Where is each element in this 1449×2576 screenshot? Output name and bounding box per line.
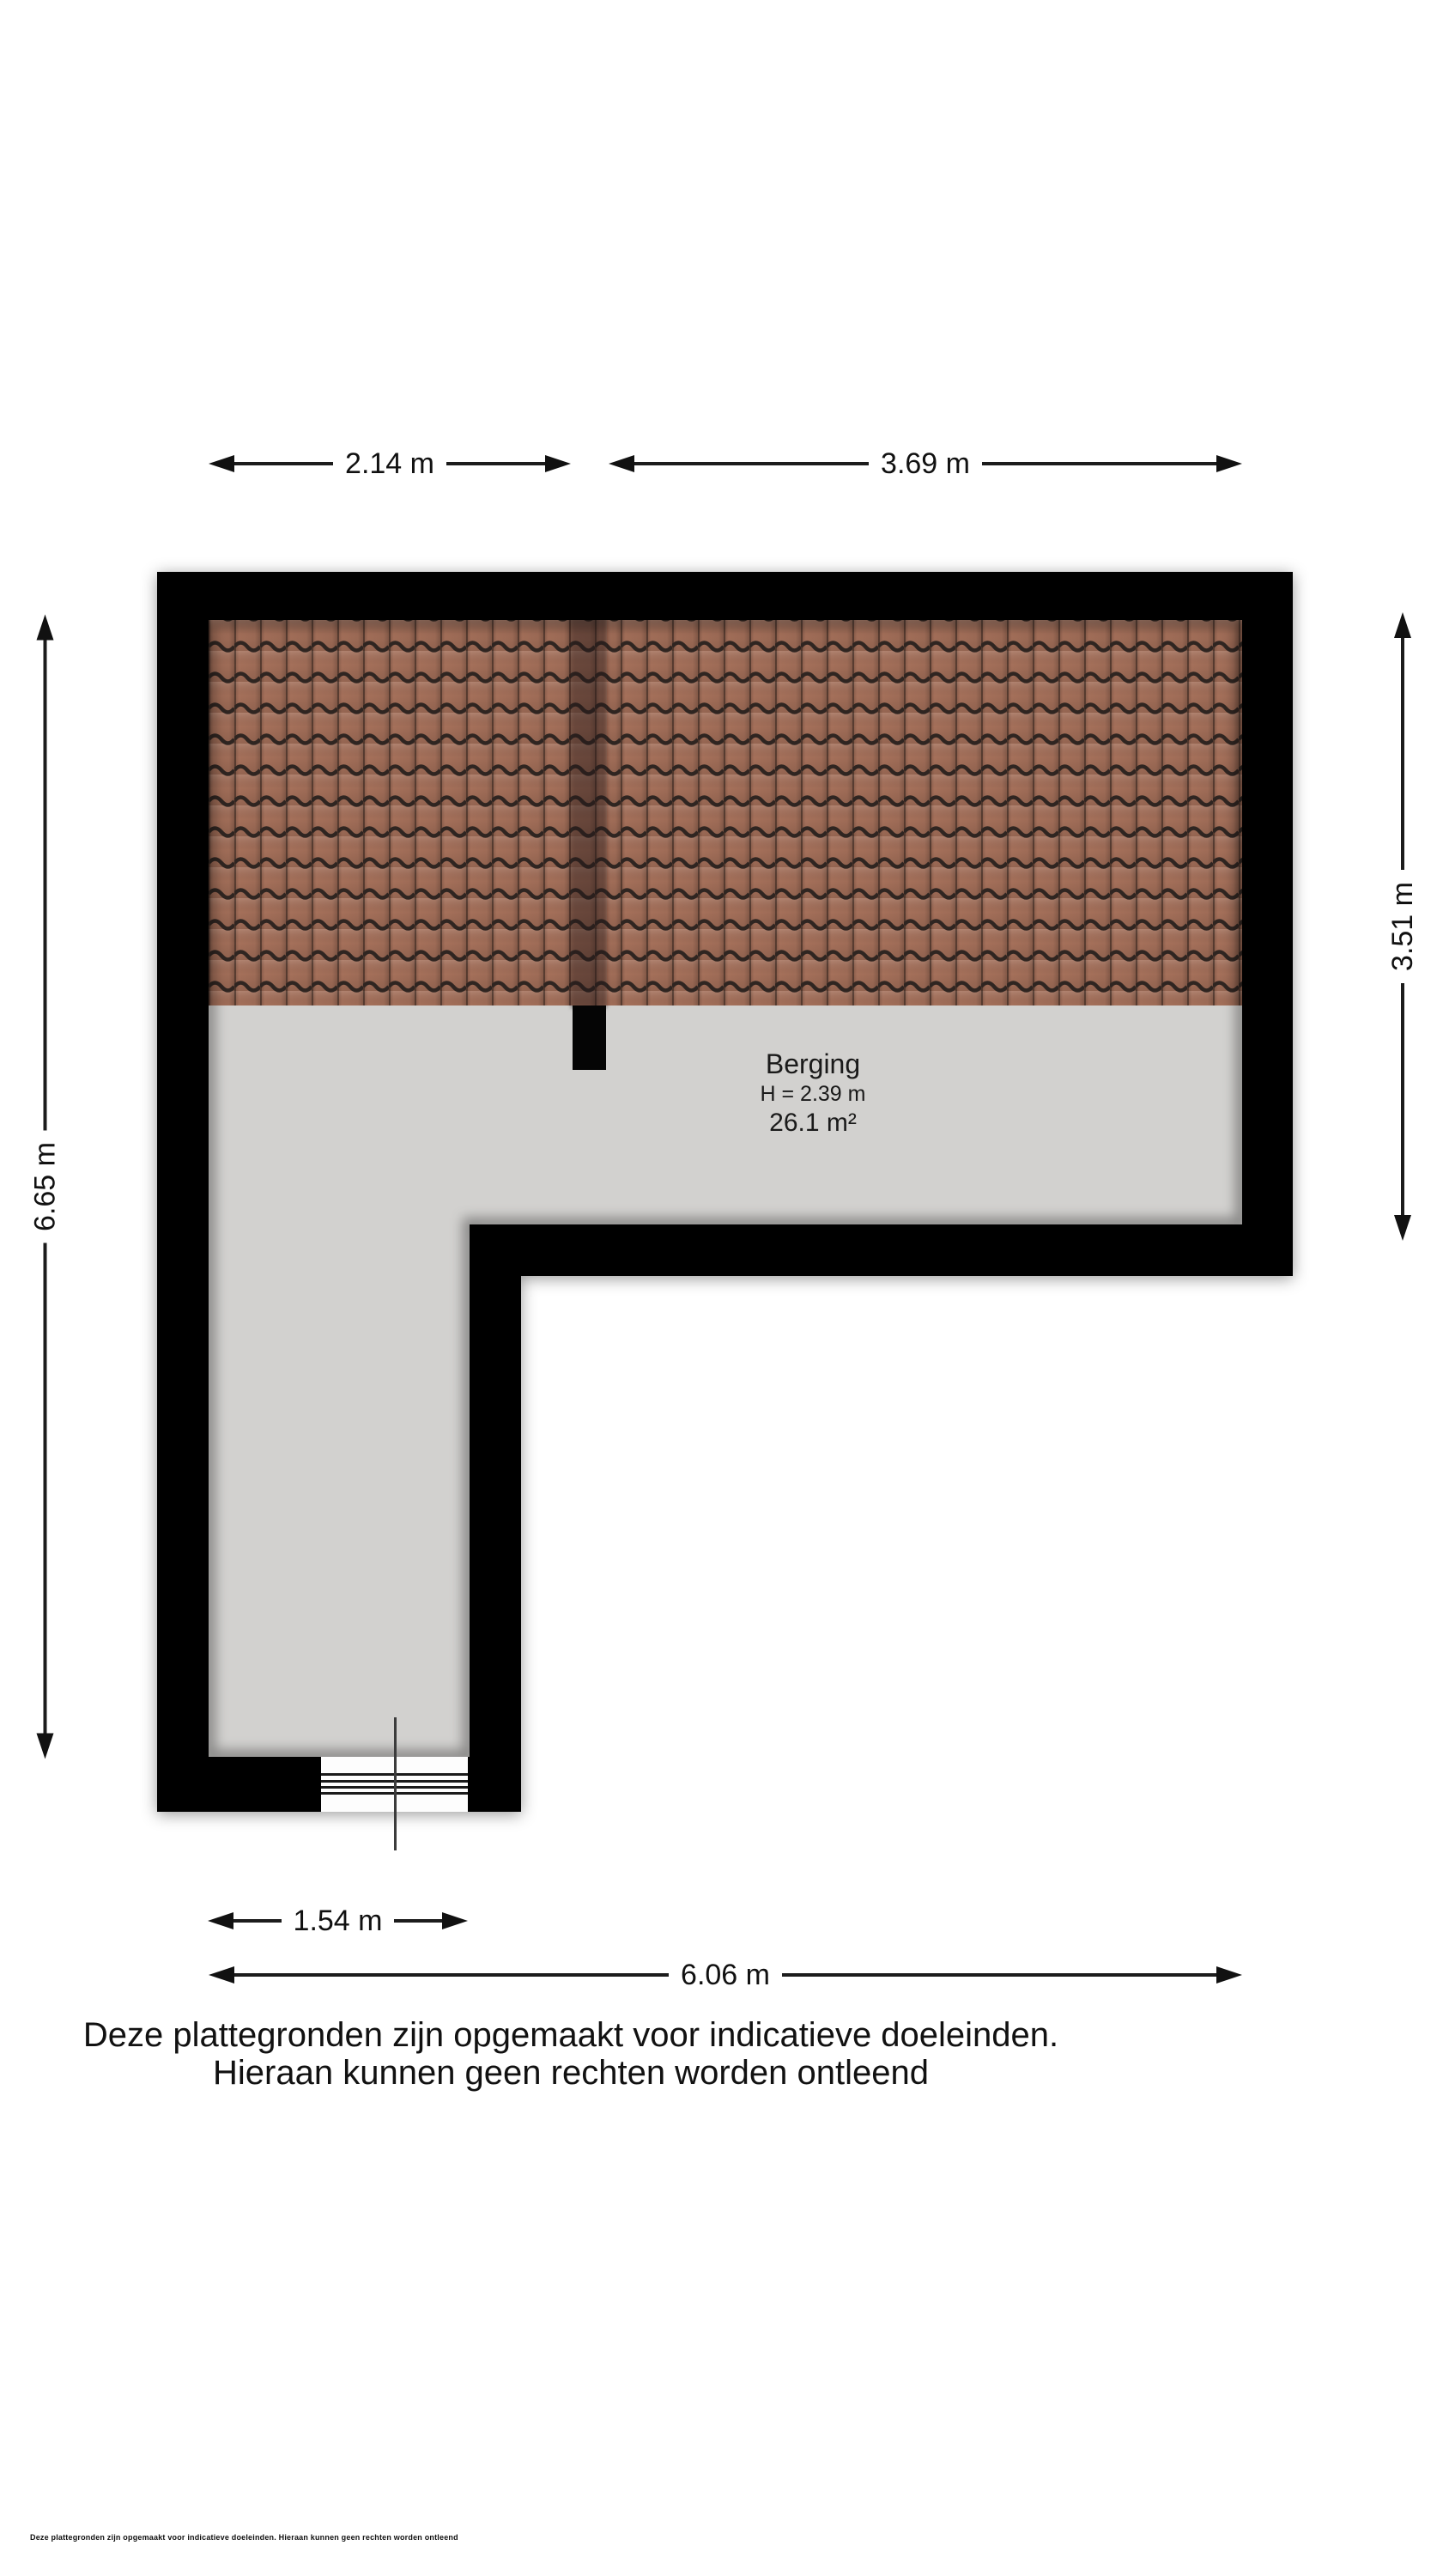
dimension-line [44,1243,47,1734]
dimension-line [634,462,869,465]
arrow-left-icon [609,455,634,472]
dimension-label: 1.54 m [282,1905,395,1938]
dimension-label: 6.06 m [669,1959,782,1992]
disclaimer-line2: Hieraan kunnen geen rechten worden ontle… [0,2054,1142,2092]
roof-tiles [209,620,1242,1005]
arrow-right-icon [1216,1966,1242,1984]
fine-print: Deze plattegronden zijn opgemaakt voor i… [30,2533,458,2542]
room-name: Berging [598,1048,1028,1080]
window-center-line [394,1717,397,1850]
dimension-line [44,640,47,1130]
dimension-line [234,462,333,465]
dimension-line [982,462,1216,465]
floor-plan [0,0,1449,2576]
dimension-label: 2.14 m [333,447,446,481]
dimension-label: 3.69 m [869,447,982,481]
dimension-line [1401,638,1404,870]
dimension-line [782,1973,1216,1977]
room-ceiling-height: H = 2.39 m [598,1080,1028,1108]
arrow-right-icon [442,1912,468,1929]
dimension-bottom-outer: 6.06 m [209,1958,1242,1992]
room-area: 26.1 m² [598,1108,1028,1139]
dimension-line [234,1973,669,1977]
dimension-line [233,1919,282,1923]
dimension-label: 3.51 m [1386,870,1420,983]
dimension-label: 6.65 m [28,1130,62,1243]
arrow-right-icon [545,455,571,472]
disclaimer-line1: Deze plattegronden zijn opgemaakt voor i… [0,2016,1142,2054]
dimension-top-left: 2.14 m [209,447,571,481]
arrow-left-icon [1394,1215,1411,1241]
dimension-line [394,1919,442,1923]
arrow-left-icon [209,455,234,472]
disclaimer: Deze plattegronden zijn opgemaakt voor i… [0,2016,1142,2092]
arrow-right-icon [37,614,54,640]
dimension-line [446,462,545,465]
arrow-left-icon [37,1734,54,1759]
dimension-bottom-inner: 1.54 m [208,1904,468,1938]
dimension-top-right: 3.69 m [609,447,1242,481]
dimension-left: 6.65 m [28,615,63,1759]
room-label: Berging H = 2.39 m 26.1 m² [598,1048,1028,1139]
arrow-right-icon [1216,455,1242,472]
arrow-right-icon [1394,612,1411,638]
dimension-line [1401,983,1404,1215]
roof-valley [571,615,607,1008]
dimension-right: 3.51 m [1385,612,1420,1241]
arrow-left-icon [209,1966,234,1984]
arrow-left-icon [208,1912,233,1929]
